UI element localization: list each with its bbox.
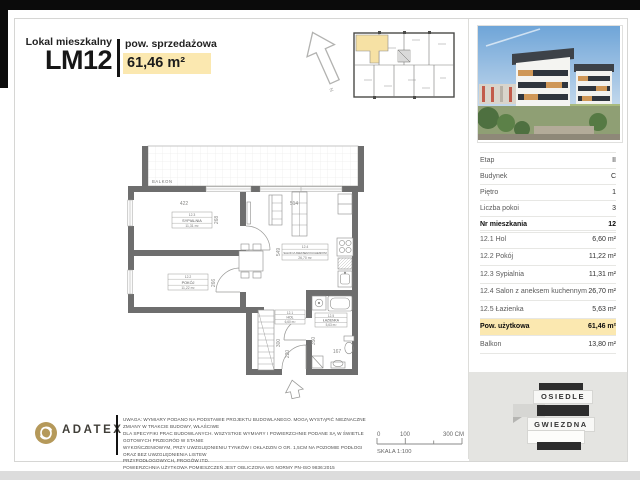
room-label-sypialnia: 12.3 SYPIALNIA 11,31 m²: [172, 212, 212, 228]
legal-disclaimer: UWAGA: WYMIARY PODANO NA PODSTAWIE PROJE…: [123, 417, 375, 472]
svg-text:268: 268: [214, 216, 220, 225]
svg-text:5,63 m²: 5,63 m²: [326, 323, 337, 327]
svg-text:0: 0: [377, 432, 381, 438]
estate-logo: OSIEDLE GWIEZDNA: [509, 383, 613, 457]
disclaimer-line: WYKOŃCZENIOWYM, PRZY UWZGLĘDNIENIU TYNKÓ…: [123, 445, 375, 459]
table-row-balcony: Balkon13,80 m²: [480, 336, 616, 354]
logo-bar: [539, 383, 583, 390]
svg-text:HOL: HOL: [287, 316, 294, 320]
table-row: 12.1 Hol6,60 m²: [480, 231, 616, 249]
svg-text:266: 266: [211, 279, 217, 288]
svg-text:350: 350: [311, 337, 317, 346]
svg-text:26,70 m²: 26,70 m²: [298, 256, 312, 260]
svg-text:SALON Z ANEKSEM KUCHENNYM: SALON Z ANEKSEM KUCHENNYM: [283, 251, 327, 255]
floor-overview-map: [352, 30, 456, 102]
logo-ribbon-fold: [513, 417, 522, 423]
table-row: Liczba pokoi3: [480, 201, 616, 217]
room-label-hol: 12.1 HOL 6,60 m²: [275, 310, 305, 324]
building-photo: [477, 25, 623, 143]
room-label-pokoj: 12.2 POKÓJ 11,22 m²: [168, 274, 208, 290]
svg-text:6,60 m²: 6,60 m²: [285, 320, 296, 324]
windows: [128, 187, 342, 294]
disclaimer-line: POWIERZCHNIA UŻYTKOWA POMIESZCZEŃ JEST O…: [123, 465, 375, 472]
svg-text:12.1: 12.1: [287, 311, 293, 315]
svg-text:12.4: 12.4: [302, 245, 309, 249]
table-row: Piętro1: [480, 185, 616, 201]
bottom-gray-strip: [0, 471, 640, 480]
sale-area-value: 61,46 m²: [123, 53, 211, 74]
svg-text:422: 422: [180, 201, 189, 207]
footer-divider: [116, 415, 118, 455]
entrance-arrow-icon: [283, 378, 304, 399]
floor-plan: BALKON: [118, 138, 370, 400]
svg-text:POKÓJ: POKÓJ: [182, 280, 195, 285]
table-row: 12.4 Salon z aneksem kuchennym26,70 m²: [480, 284, 616, 302]
north-arrow-icon: N: [298, 24, 350, 98]
header-divider: [117, 39, 120, 77]
scale-bar: 0 100 300 CM SKALA 1:100: [376, 428, 472, 456]
sale-area-label: pow. sprzedażowa: [125, 38, 217, 50]
logo-bar: [537, 442, 581, 450]
svg-text:12.5: 12.5: [328, 314, 334, 318]
table-row: EtapII: [480, 153, 616, 169]
svg-text:11,31 m²: 11,31 m²: [185, 224, 199, 228]
photo-greenery: [478, 104, 620, 140]
photo-distant-buildings: [479, 84, 521, 104]
overview-stairs: [398, 50, 410, 62]
unit-id: LM12: [18, 45, 112, 76]
room-area-table: 12.1 Hol6,60 m² 12.2 Pokój11,22 m² 12.3 …: [480, 230, 616, 354]
adatex-logo-icon: [34, 420, 58, 446]
top-black-bar: [0, 0, 640, 10]
north-label: N: [327, 87, 334, 93]
svg-text:SKALA 1:100: SKALA 1:100: [377, 449, 412, 455]
estate-name-line1: OSIEDLE: [533, 390, 593, 404]
balcony-label: BALKON: [152, 179, 173, 184]
disclaimer-line: UWAGA: WYMIARY PODANO NA PODSTAWIE PROJE…: [123, 417, 375, 431]
furniture: [239, 192, 354, 370]
walls: [128, 186, 358, 375]
svg-text:11,22 m²: 11,22 m²: [181, 286, 195, 290]
svg-text:SYPIALNIA: SYPIALNIA: [182, 219, 202, 223]
svg-text:549: 549: [276, 248, 282, 257]
disclaimer-line: DLA SPECYFIKI PRAC BUDOWLANYCH. WSZYSTKI…: [123, 431, 375, 445]
unit-info-table: EtapII BudynekC Piętro1 Liczba pokoi3 Nr…: [480, 152, 616, 233]
svg-text:12.3: 12.3: [189, 213, 196, 217]
svg-text:300 CM: 300 CM: [443, 432, 464, 438]
table-row: BudynekC: [480, 169, 616, 185]
svg-text:220: 220: [285, 350, 291, 359]
svg-text:ŁAZIENKA: ŁAZIENKA: [323, 319, 340, 323]
svg-text:514: 514: [290, 201, 299, 207]
svg-text:167: 167: [333, 349, 342, 355]
logo-bar: [537, 405, 589, 416]
table-row: 12.5 Łazienka5,63 m²: [480, 301, 616, 319]
adatex-brand-text: ADATEX: [62, 424, 123, 436]
table-row: 12.3 Sypialnia11,31 m²: [480, 266, 616, 284]
svg-text:100: 100: [400, 432, 411, 438]
room-label-salon: 12.4 SALON Z ANEKSEM KUCHENNYM 26,70 m²: [282, 244, 328, 260]
table-row-total-area: Pow. użytkowa61,46 m²: [480, 319, 616, 337]
room-label-lazienka: 12.5 ŁAZIENKA 5,63 m²: [315, 313, 347, 327]
table-row: 12.2 Pokój11,22 m²: [480, 249, 616, 267]
svg-text:300: 300: [276, 339, 282, 348]
left-black-bar: [0, 0, 8, 88]
svg-text:12.2: 12.2: [185, 275, 192, 279]
balcony: BALKON: [142, 146, 364, 192]
